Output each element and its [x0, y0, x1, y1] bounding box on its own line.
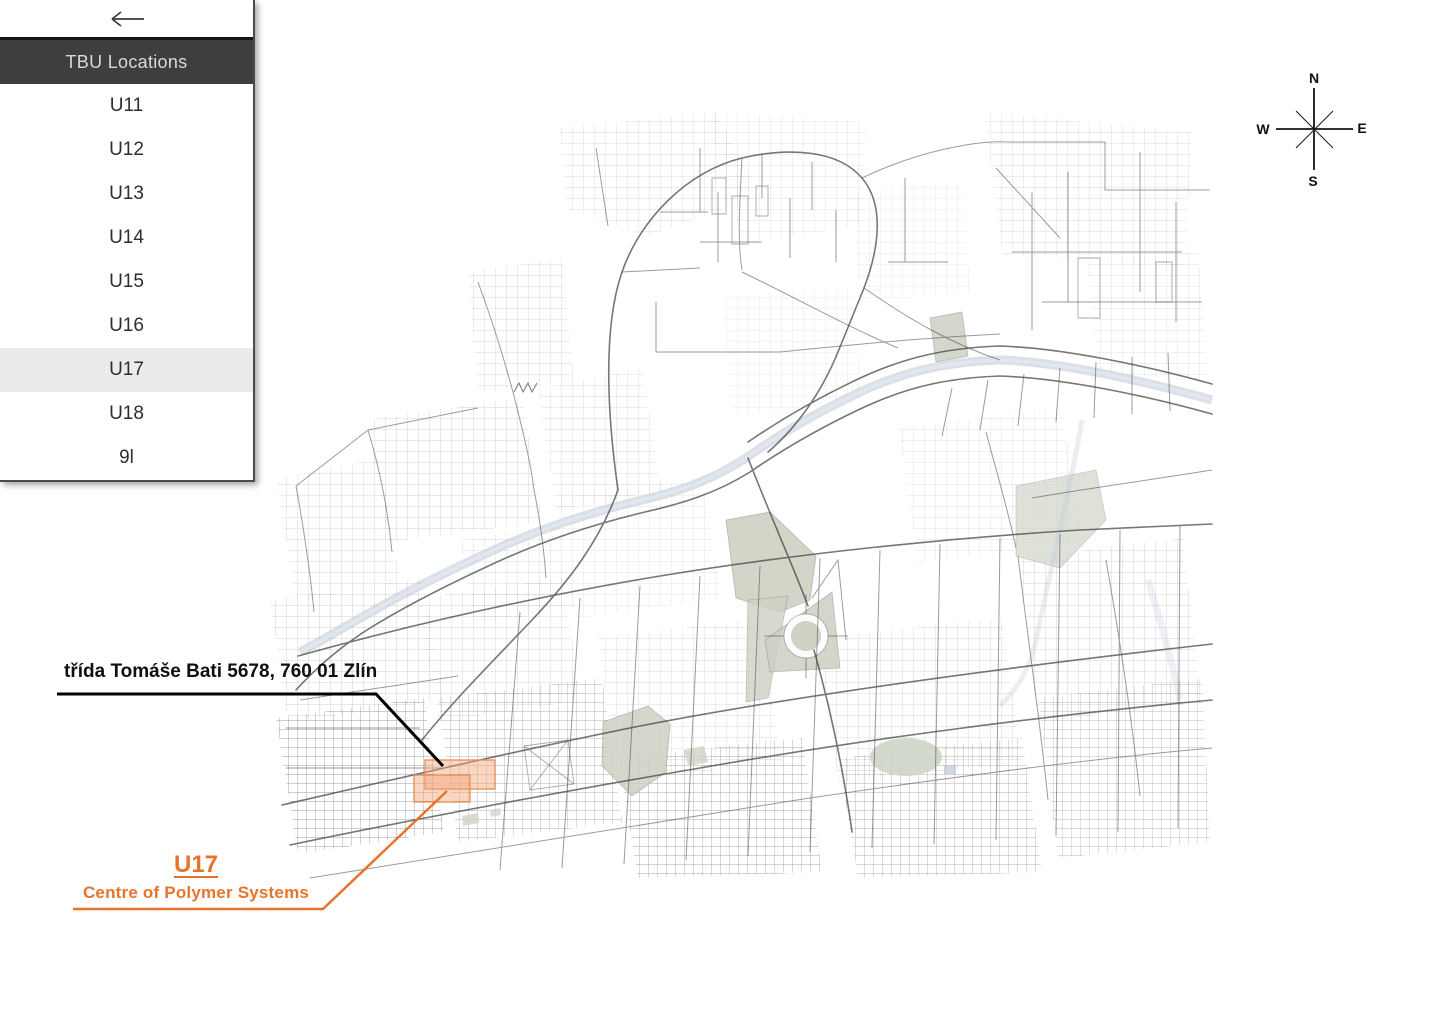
building-code: U17	[70, 851, 322, 879]
map-page: N S W E třída Tomáše Bati 5678, 760 01 Z…	[0, 0, 1440, 1024]
sidebar-item-u18[interactable]: U18	[0, 392, 253, 436]
sidebar-header: TBU Locations	[0, 40, 253, 84]
sidebar-item-u17[interactable]: U17	[0, 348, 253, 392]
sidebar-item-9l[interactable]: 9l	[0, 436, 253, 480]
compass-n-label: N	[1309, 70, 1319, 86]
sidebar-item-u16[interactable]: U16	[0, 304, 253, 348]
sidebar-item-u11[interactable]: U11	[0, 84, 253, 128]
compass-e-label: E	[1357, 120, 1366, 136]
compass-rose: N S W E	[1256, 70, 1366, 189]
address-annotation: třída Tomáše Bati 5678, 760 01 Zlín	[64, 661, 377, 683]
building-label: U17 Centre of Polymer Systems	[70, 851, 322, 903]
sidebar-item-u13[interactable]: U13	[0, 172, 253, 216]
building-name: Centre of Polymer Systems	[70, 883, 322, 903]
compass-s-label: S	[1308, 173, 1317, 189]
sidebar-item-u15[interactable]: U15	[0, 260, 253, 304]
sidebar: TBU Locations U11 U12 U13 U14 U15 U16 U1…	[0, 0, 255, 482]
back-arrow-icon	[107, 10, 147, 28]
sidebar-item-u12[interactable]: U12	[0, 128, 253, 172]
sidebar-item-u14[interactable]: U14	[0, 216, 253, 260]
back-button[interactable]	[0, 0, 253, 40]
compass-w-label: W	[1256, 121, 1270, 137]
